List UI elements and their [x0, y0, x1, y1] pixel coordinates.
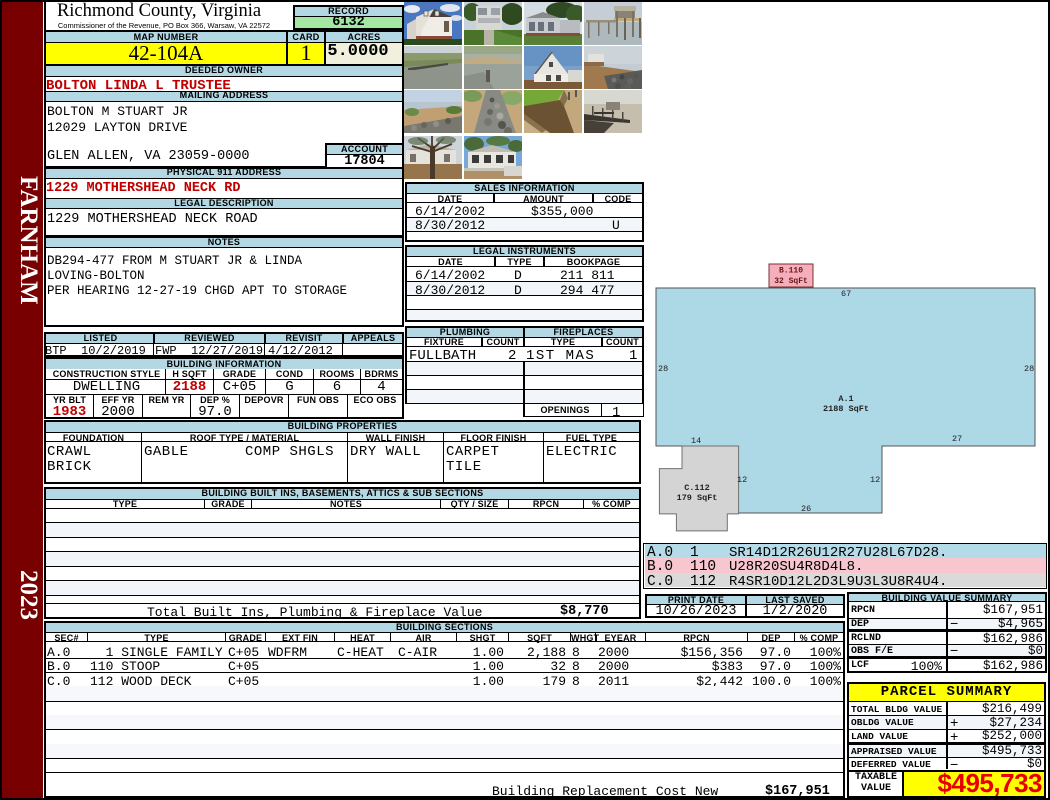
svg-text:B.110: B.110	[779, 267, 803, 276]
svg-text:28: 28	[658, 364, 668, 374]
svg-text:12: 12	[870, 475, 880, 485]
svg-text:67: 67	[841, 289, 851, 299]
svg-text:14: 14	[691, 436, 701, 446]
svg-text:28: 28	[1024, 364, 1034, 374]
svg-text:2188 SqFt: 2188 SqFt	[823, 404, 869, 414]
svg-text:12: 12	[737, 475, 747, 485]
svg-text:A.1: A.1	[838, 394, 853, 404]
svg-text:27: 27	[952, 434, 962, 444]
svg-text:C.112: C.112	[684, 483, 710, 493]
svg-text:32 SqFt: 32 SqFt	[774, 277, 808, 286]
svg-text:179 SqFt: 179 SqFt	[677, 493, 718, 503]
svg-text:26: 26	[801, 504, 811, 514]
